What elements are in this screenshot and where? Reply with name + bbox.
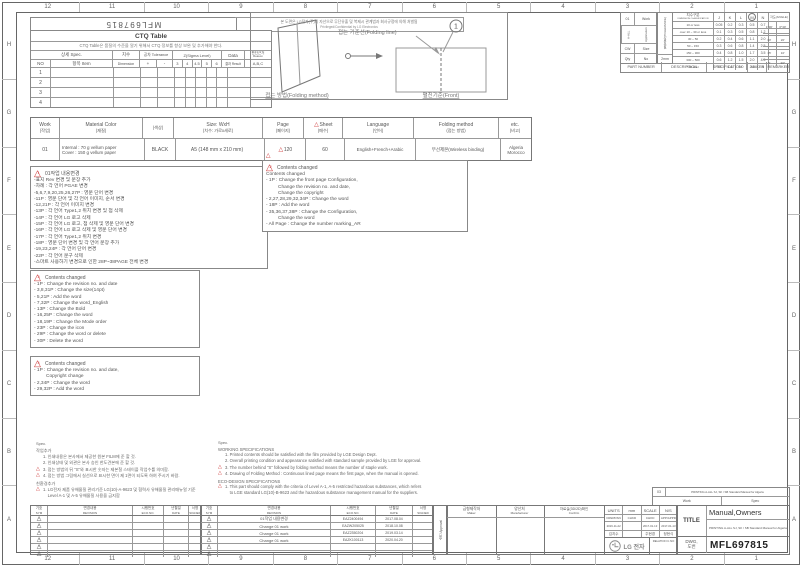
work-spec-strip: 03 PRINTING A-ALL SJ, SK / SB Standard M… — [652, 487, 790, 506]
revision-triangle-icon: 1 — [206, 516, 212, 522]
ruler-top: 121110987654321 — [16, 2, 788, 12]
units-block: UNITS DRW/DSN 2016-11-22 김지수 mm CHKD SCA… — [604, 505, 678, 555]
ruler-left: HGFEDCBA — [2, 12, 16, 553]
revision-triangle-icon: 4 — [34, 359, 43, 368]
ctq-header-data: Data — [222, 51, 244, 60]
revision-row: 3 — [31, 530, 201, 537]
tol-angle-row: 1°30′ 0°30′ — [763, 21, 789, 34]
confirm-block: 자료실(3D/2D)확인Confirm — [544, 505, 605, 555]
units-col: SCALE CHKD 2017-01-13 주현경 — [642, 506, 660, 537]
revision-eco-no — [331, 551, 376, 557]
revision-row: 5 — [31, 544, 201, 551]
change-line: - 30P : Delete the word — [34, 339, 196, 345]
ctq-row: 3 — [31, 88, 271, 98]
ctq-header-spec: 상세 Spec. — [31, 51, 112, 60]
revision-row: 1 — [31, 516, 201, 523]
ruler-top-label: 2 — [660, 2, 724, 12]
ruler-top-label: 7 — [338, 2, 402, 12]
strip-no: 03 — [653, 488, 666, 496]
units-role: APP/APPD — [660, 515, 677, 522]
application-label: Work — [635, 13, 657, 25]
ctq-sigma-level: 6 — [212, 60, 221, 67]
units-col: mm CHKD — [623, 506, 641, 537]
ctq-sigma-level: 5 — [202, 60, 212, 67]
revision-triangle-icon: 6 — [206, 551, 212, 557]
ctq-header-no: NO — [31, 60, 51, 67]
tol-col-l: L — [736, 13, 747, 21]
ruler-top-label: 9 — [209, 2, 273, 12]
drawing-number: MFL697815 — [707, 537, 789, 553]
revision-date: 2020.04.20 — [376, 537, 413, 543]
revision-triangle-icon: 3 — [36, 530, 42, 536]
spec-material-2: Cover : 150 g vellum paper — [62, 150, 144, 155]
revision-row: 4 — [31, 537, 201, 544]
ctq-header-result: 결과 Result — [222, 60, 244, 67]
revision-triangle-icon — [218, 490, 225, 496]
revision-eco-no: EAZ2350204 — [331, 530, 376, 536]
ctq-table: CTQ Table CTQ Table은 품질의 수준을 알기 위해서 CTQ … — [30, 30, 272, 108]
ctq-header-item: 항목 Item — [51, 60, 112, 67]
ctq-row: 2 — [31, 78, 271, 88]
revision-row: 6 — [201, 551, 433, 557]
revision-triangle-icon: 1 — [36, 516, 42, 522]
ctq-sigma-level: 3 — [173, 60, 183, 67]
application-row: 01 Work — [621, 13, 657, 26]
ruler-right-label: D — [788, 283, 800, 351]
change-line: - 29,32P : Add the word — [34, 387, 196, 393]
change-box-title: 01작업 내용변경 — [45, 170, 80, 177]
spec-folding: 무선제본(Wireless binding) — [416, 139, 501, 160]
revision-eco-no: EAZW205025 — [331, 523, 376, 529]
spec-header-sheet: Sheet (매수) — [304, 118, 343, 138]
ctq-header-plus: + — [140, 60, 157, 67]
ruler-top-label: 3 — [596, 2, 660, 12]
revision-triangle-icon: 4 — [206, 537, 212, 543]
units-role: CHKD — [642, 515, 659, 522]
revision-row: 2 Change 01 work EAZW205025 2018.10.08 — [201, 523, 433, 530]
note-item: Level A-1 및 A-5 유해물질 사용을 금지함 — [36, 493, 216, 499]
units-name: 정현식 — [660, 531, 677, 537]
ruler-left-label: D — [2, 283, 16, 351]
units-date — [623, 522, 640, 531]
ruler-top-label: 10 — [145, 2, 209, 12]
ruler-left-label: E — [2, 215, 16, 283]
ctq-header-dim-ko: 치수 — [113, 51, 139, 60]
revision-date: 2019.03.14 — [376, 530, 413, 536]
balloon-number: 1 — [454, 24, 458, 31]
title-label: TITLE — [677, 506, 707, 536]
ruler-top-label: 8 — [274, 2, 338, 12]
units-name: 주현경 — [642, 531, 659, 537]
revision-table-right: 기호SYM 변경내용REVISION 시행번호ECO.NO. 년월일DATE 서… — [200, 505, 434, 555]
part-header-cell: SPECIFICATION — [707, 62, 748, 72]
maker-block: 금형제작처Maker — [446, 505, 497, 555]
revision-triangle-icon: 2 — [266, 163, 275, 172]
spec-color: BLACK — [145, 139, 176, 160]
units-date: 2017-01-13 — [642, 522, 659, 531]
units-header: SCALE — [642, 506, 659, 515]
ruler-top-label: 4 — [531, 2, 595, 12]
ctq-row-no: 1 — [31, 68, 51, 77]
notes-spec-label: Spec. — [218, 440, 540, 445]
application-value: 01 — [621, 13, 635, 25]
tol-range: over 10 ~ 30 or less — [673, 29, 714, 35]
units-date: 2017-01-13 — [660, 522, 677, 531]
revision-triangle-icon — [313, 122, 319, 128]
tol-col-j: J — [714, 13, 725, 21]
strip-spec-label: Spec — [722, 497, 790, 505]
revision-triangle-icon: △ — [218, 471, 225, 477]
title-block: TITLE Manual,Owners PRINTING A-ALL SJ, S… — [676, 505, 790, 555]
notes-english: Spec. WORKING SPECIFICATIONS 1. Printed … — [218, 440, 540, 497]
doc-title: Manual,Owners — [707, 506, 789, 520]
application-row: CW Size — [621, 44, 657, 54]
revision-description — [218, 544, 331, 550]
revision-triangle-icon — [265, 153, 271, 159]
ruler-right: HGFEDCBA — [788, 12, 800, 553]
tol-angle-header: 각도(ANGLE) — [769, 13, 789, 21]
revision-triangle-icon: △ — [36, 473, 43, 479]
ruler-right-label: E — [788, 215, 800, 283]
revision-triangle-icon: 2 — [36, 523, 42, 529]
spec-page: 120 — [265, 139, 306, 160]
ctq-title: CTQ Table — [31, 31, 271, 42]
ruler-left-label: C — [2, 351, 16, 419]
strip-work-label: Work — [653, 497, 722, 505]
ruler-left-label: A — [2, 486, 16, 553]
revision-row: 4 Change 01 work EAZK100113 2020.04.20 — [201, 537, 433, 544]
revision-triangle-icon: 1 — [34, 169, 43, 178]
revision-row: 2 — [31, 523, 201, 530]
tol-header-en: DIMENSION CLASSIFICATION — [678, 18, 709, 20]
revision-triangle-icon: 4 — [36, 537, 42, 543]
ctq-row: 4 — [31, 98, 271, 107]
ctq-row-no: 3 — [31, 88, 51, 97]
part-header-row: PART NUMBERDESCRIPTIONSPECIFICATIONMAKER… — [620, 62, 790, 73]
ruler-left-label: G — [2, 80, 16, 148]
revision-triangle-icon: 2 — [206, 523, 212, 529]
revision-description: Change 01 work — [218, 523, 331, 529]
ctq-sigma-level: 4 — [183, 60, 193, 67]
revision-description: Change 01 work — [218, 530, 331, 536]
change-box-2: 2 Contents changed Contents changed- 1P … — [262, 160, 468, 232]
part-header-cell: PART NUMBER — [621, 62, 662, 72]
tol-col-k: K — [725, 13, 736, 21]
ctq-row: 1 — [31, 68, 271, 78]
revision-eco-no: EAZ2400494 — [331, 516, 376, 522]
ruler-left-label: F — [2, 148, 16, 216]
ctq-row-no: 4 — [31, 98, 51, 107]
strip-desc: PRINTING A-ALL SJ, SK / SB Standard Manu… — [666, 488, 789, 496]
change-line: - All Page : Change the number marking_A… — [266, 222, 464, 228]
revision-eco-no: EAZK100113 — [331, 537, 376, 543]
revision-triangle-icon: 3 — [34, 273, 43, 282]
units-date: 2016-11-22 — [605, 522, 622, 531]
revision-triangle-icon: 5 — [206, 544, 212, 550]
spec-sheet: 60 — [306, 139, 345, 160]
change-line: -스마트 사용하기 변경으로 인한 28P~38PAGE 전체 변경 — [34, 260, 264, 266]
units-col: N/S APP/APPD 2017-01-13 정현식 — [660, 506, 677, 537]
spec-work: 01 — [31, 139, 60, 160]
units-header: mm — [623, 506, 640, 515]
part-header-cell: DESCRIPTION — [662, 62, 707, 72]
tolerance-band-label: 일반공차(TOLERANCE) — [663, 17, 667, 49]
doc-number-flipped: MFL697815 — [105, 20, 161, 29]
notes-korean: Spec. 작업추가 1. 인쇄내용은 본사에서 제공한 원본 FILM에 준 … — [36, 441, 216, 500]
lg-logo-text: LG 전자 — [623, 542, 644, 551]
ruler-top-label: 12 — [16, 2, 80, 12]
ruler-right-label: G — [788, 80, 800, 148]
tol-angle-row: 15′ 10′ — [763, 47, 789, 60]
revision-row: 5 — [201, 544, 433, 551]
ctq-row-no: 2 — [31, 78, 51, 87]
tol-col-m-circled: M — [748, 13, 756, 21]
units-name — [623, 531, 640, 537]
ctq-header-tol: 공차 Tolerance — [140, 51, 172, 60]
lg-logo-icon — [609, 540, 621, 552]
folding-line-label: 접는 기준선(Folding line) — [338, 28, 397, 36]
tol-range: 10 or less — [673, 22, 714, 28]
revision-date: 2017.08.04 — [376, 516, 413, 522]
spec-table: Work(작업) Material Color(재질) (색상) Size: W… — [30, 117, 532, 161]
lg-logo: LG 전자 — [605, 538, 649, 554]
revision-date: 2018.10.08 — [376, 523, 413, 529]
tol-col-n: N — [758, 13, 769, 21]
doc-subtitle: PRINTING A-ALL SJ, SK / SB Standard Manu… — [707, 520, 789, 536]
ctq-note: CTQ Table은 품질의 수준을 알기 위해서 CTQ 정보를 항상 보완 … — [31, 42, 271, 51]
part-header-cell: MAKER — [748, 62, 767, 72]
change-box-3: 3 Contents changed - 1P : Change the rev… — [30, 270, 200, 348]
ruler-top-label: 11 — [80, 2, 144, 12]
ruler-top-label: 5 — [467, 2, 531, 12]
change-box-title: Contents changed — [45, 275, 86, 281]
revision-triangle-icon: 5 — [36, 544, 42, 550]
revision-description — [218, 551, 331, 557]
tolerance-table: 치수구분 DIMENSION CLASSIFICATION J K L M N … — [672, 12, 790, 64]
spec-language: English+French+Arabic — [345, 139, 416, 160]
units-header: N/S — [660, 506, 677, 515]
revision-triangle-icon: 3 — [206, 530, 212, 536]
ruler-left-label: H — [2, 12, 16, 80]
revision-row: 1 01작업 내용변경 EAZ2400494 2017.08.04 — [201, 516, 433, 523]
revision-triangle-icon — [278, 147, 284, 153]
notes-spec-label: Spec. — [36, 441, 216, 446]
ctq-header-minus: - — [157, 60, 172, 67]
revision-row: 6 — [31, 551, 201, 557]
ruler-top-label: 6 — [403, 2, 467, 12]
revision-table-left: 기호SYM 변경내용REVISION 시행번호ECO.NO. 년월일DATE 서… — [30, 505, 202, 555]
tol-angle-row: 30′ 20′ — [763, 34, 789, 47]
ruler-right-label: B — [788, 419, 800, 487]
units-header: UNITS — [605, 506, 622, 515]
front-label: 펼친기준(Front) — [423, 91, 460, 99]
folding-diagram: 1 접는 기준선(Folding line) 접는 방법(Folding met… — [250, 12, 508, 100]
units-role: CHKD — [623, 515, 640, 522]
tol-range: 30 ~ 50 — [673, 36, 714, 42]
revision-triangle-icon — [36, 493, 43, 499]
ruler-right-label: C — [788, 351, 800, 419]
revision-description: 01작업 내용변경 — [218, 516, 331, 522]
application-label: Size — [635, 44, 657, 53]
change-box-1: 1 01작업 내용변경 -표지 Rev 변경 및 문장 추가-차례 : 각 언어… — [30, 166, 268, 269]
ctq-header-dim-en: Dimension — [113, 60, 139, 67]
tol-angle-values: 1°30′ 0°30′ 30′ 20′ 15′ 10′ 5′ 30″ — [763, 21, 789, 63]
note-item: to LGE standard LG(10)-B-9623 and the ha… — [218, 490, 540, 496]
ruler-right-label: F — [788, 148, 800, 216]
tol-range: 50 ~ 150 — [673, 43, 714, 49]
note-item: △ 4. 접는 방법 그림에서 실선으로 표시한 면이 제 1면이 되도록 하여… — [36, 473, 216, 479]
revision-eco-no — [331, 544, 376, 550]
application-value: CW — [621, 44, 635, 53]
relation-cno: RELATION C.NO — [649, 538, 677, 554]
application-label: Application — [635, 26, 657, 43]
ruler-left-label: B — [2, 419, 16, 487]
revision-triangle-icon: 6 — [36, 551, 42, 557]
application-row: A-ALL Application — [621, 26, 657, 44]
spec-size: A5 (148 mm x 210 mm) — [176, 139, 265, 160]
revision-description: Change 01 work — [218, 537, 331, 543]
change-box-title: Contents changed — [277, 165, 318, 171]
revision-date — [376, 551, 413, 557]
units-name: 김지수 — [605, 531, 622, 537]
units-col: UNITS DRW/DSN 2016-11-22 김지수 — [605, 506, 623, 537]
change-box-4: 4 Contents changed - 1P : Change the rev… — [30, 356, 200, 396]
spec-etc: AlgeriaMorocco — [501, 139, 531, 160]
part-header-cell: REMARKER — [767, 62, 789, 72]
ctq-header-sigma: Z(Sigma Level) — [173, 51, 221, 60]
ctq-sigma-level: 4.5 — [193, 60, 203, 67]
application-table: 01 Work A-ALL Application CW Size Qty No — [620, 12, 658, 64]
application-value: A-ALL — [621, 26, 635, 43]
tol-range: 150 ~ 300 — [673, 50, 714, 56]
drawing-sheet: 121110987654321 121110987654321 HGFEDCBA… — [0, 0, 802, 567]
note-item: △ 4. Drawing of Folding Method : Continu… — [218, 471, 540, 477]
manufacturer-block: 양산처Manufacturer — [495, 505, 545, 555]
change-box-title: Contents changed — [45, 361, 86, 367]
ruler-top-label: 1 — [725, 2, 788, 12]
folding-method-label: 접는 방법(Folding method) — [265, 91, 329, 99]
revision-row: 3 Change 01 work EAZ2350204 2019.03.14 — [201, 530, 433, 537]
units-role: DRW/DSN — [605, 515, 622, 522]
revision-date — [376, 544, 413, 550]
